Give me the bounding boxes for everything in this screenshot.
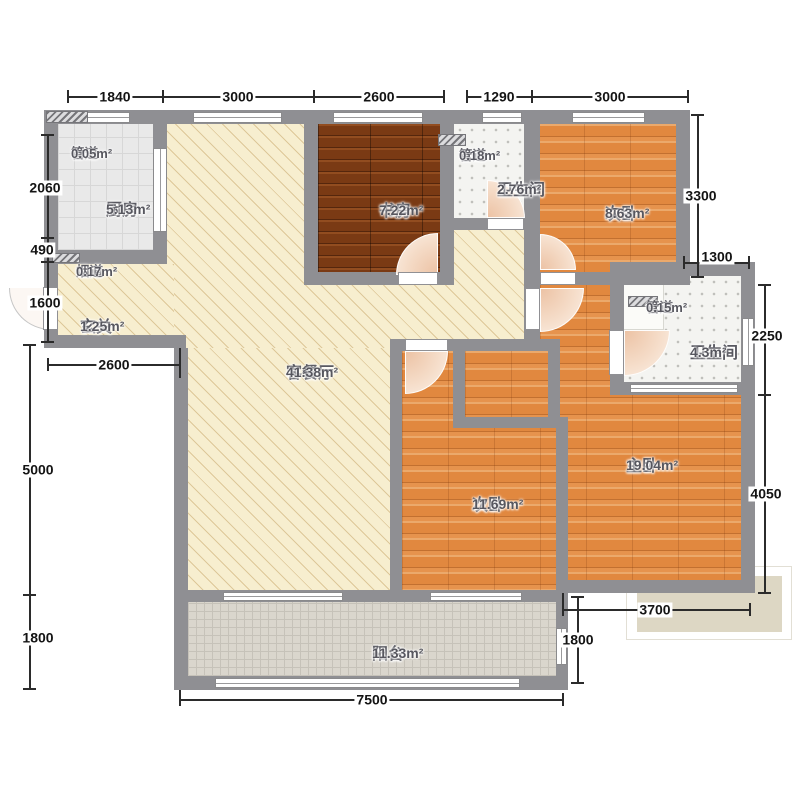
dim-tick bbox=[687, 90, 689, 103]
bed-top-door bbox=[540, 272, 576, 285]
dim-bottom-7500: 7500 bbox=[354, 693, 389, 708]
dim-tick bbox=[47, 358, 49, 371]
dim-left-1600: 1600 bbox=[27, 296, 62, 311]
dim-left-5000: 5000 bbox=[20, 463, 55, 478]
dim-tick bbox=[41, 237, 54, 239]
living-window bbox=[193, 112, 282, 123]
dim-tick bbox=[23, 688, 36, 690]
bed-mid-door bbox=[405, 339, 448, 351]
dim-tick bbox=[749, 603, 751, 616]
wall-cell-right bbox=[548, 351, 560, 417]
wall-left-lower bbox=[174, 348, 188, 690]
dim-extension bbox=[179, 690, 181, 700]
dim-top-1840: 1840 bbox=[97, 90, 132, 105]
dim-tick bbox=[758, 592, 771, 594]
dim-tick bbox=[41, 341, 54, 343]
dim-inner-2600: 2600 bbox=[96, 358, 131, 373]
kitchen-sliding-door bbox=[153, 148, 167, 232]
dim-tick bbox=[571, 596, 584, 598]
dim-top-3000a: 3000 bbox=[220, 90, 255, 105]
dim-right-3300: 3300 bbox=[683, 189, 718, 204]
bath-right-door bbox=[609, 330, 624, 375]
kitchen-floor bbox=[58, 124, 153, 250]
dim-tick bbox=[531, 90, 533, 103]
dim-left-490: 490 bbox=[28, 243, 55, 258]
dim-tick bbox=[67, 90, 69, 103]
dim-tick bbox=[683, 256, 685, 269]
study-window bbox=[333, 112, 423, 123]
bath-right-inner-window bbox=[630, 384, 738, 393]
dim-bottom-3700: 3700 bbox=[637, 603, 672, 618]
balcony-window bbox=[215, 678, 520, 688]
dim-extension bbox=[179, 348, 181, 378]
dim-tick bbox=[23, 344, 36, 346]
dim-bottom-1800: 1800 bbox=[560, 633, 595, 648]
dim-tick bbox=[162, 90, 164, 103]
duct-top-vent bbox=[438, 134, 466, 146]
wall-bedrooms-divider bbox=[556, 417, 568, 595]
dim-tick bbox=[41, 261, 54, 263]
dim-tick bbox=[562, 693, 564, 706]
dim-tick bbox=[41, 134, 54, 136]
study-door bbox=[398, 272, 438, 285]
dim-tick bbox=[443, 90, 445, 103]
bed-top-window bbox=[572, 112, 645, 123]
balcony-door-bedroom bbox=[430, 592, 522, 601]
dim-tick bbox=[691, 114, 704, 116]
wall-entry-bottom bbox=[44, 335, 186, 348]
dim-tick bbox=[571, 682, 584, 684]
dim-right-1300: 1300 bbox=[699, 250, 734, 265]
floor-plan: 管道0.05m² 厨房5.13m² 烟道0.17m² 玄关1.25m² 客餐厅4… bbox=[0, 0, 800, 800]
dim-left-1800: 1800 bbox=[20, 631, 55, 646]
dim-top-2600: 2600 bbox=[361, 90, 396, 105]
dim-tick bbox=[748, 256, 750, 269]
flue-vent bbox=[52, 253, 80, 263]
dim-top-1290: 1290 bbox=[481, 90, 516, 105]
dim-tick bbox=[466, 90, 468, 103]
wall-study-left bbox=[304, 124, 318, 285]
wall-bath-right-left bbox=[610, 262, 624, 395]
bath-top-window bbox=[482, 112, 522, 123]
dim-top-3000b: 3000 bbox=[592, 90, 627, 105]
wall-cell-bottom bbox=[453, 417, 568, 428]
dim-extension bbox=[562, 593, 564, 605]
bath-top-door bbox=[487, 218, 524, 230]
balcony-floor bbox=[188, 602, 556, 676]
dim-tick bbox=[691, 276, 704, 278]
dim-tick bbox=[23, 594, 36, 596]
dim-tick bbox=[758, 284, 771, 286]
wall-master-bottom bbox=[556, 580, 755, 593]
void-cell-floor bbox=[465, 351, 548, 417]
wall-study-right bbox=[440, 124, 454, 285]
balcony-door-living bbox=[223, 592, 343, 601]
wall-bed-mid-left bbox=[390, 339, 402, 595]
dim-right-2250: 2250 bbox=[749, 329, 784, 344]
dim-right-4050: 4050 bbox=[748, 487, 783, 502]
dim-left-2060: 2060 bbox=[27, 181, 62, 196]
duct-tl-vent bbox=[46, 111, 88, 123]
dim-tick bbox=[313, 90, 315, 103]
master-door bbox=[525, 288, 540, 330]
